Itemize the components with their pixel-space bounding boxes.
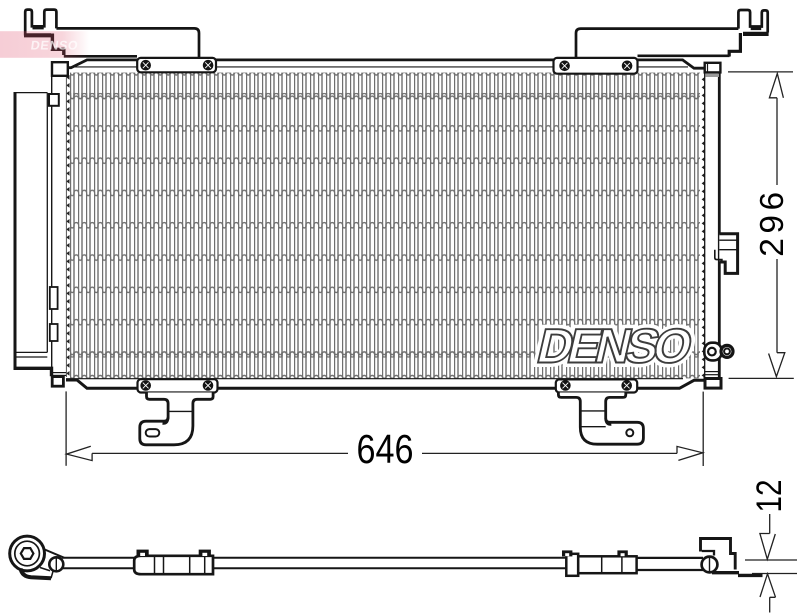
svg-text:296: 296 [754, 187, 791, 256]
svg-text:12: 12 [750, 480, 789, 513]
svg-text:DENSO: DENSO [532, 320, 696, 373]
svg-text:DENSO: DENSO [30, 38, 79, 52]
svg-text:646: 646 [357, 426, 414, 472]
